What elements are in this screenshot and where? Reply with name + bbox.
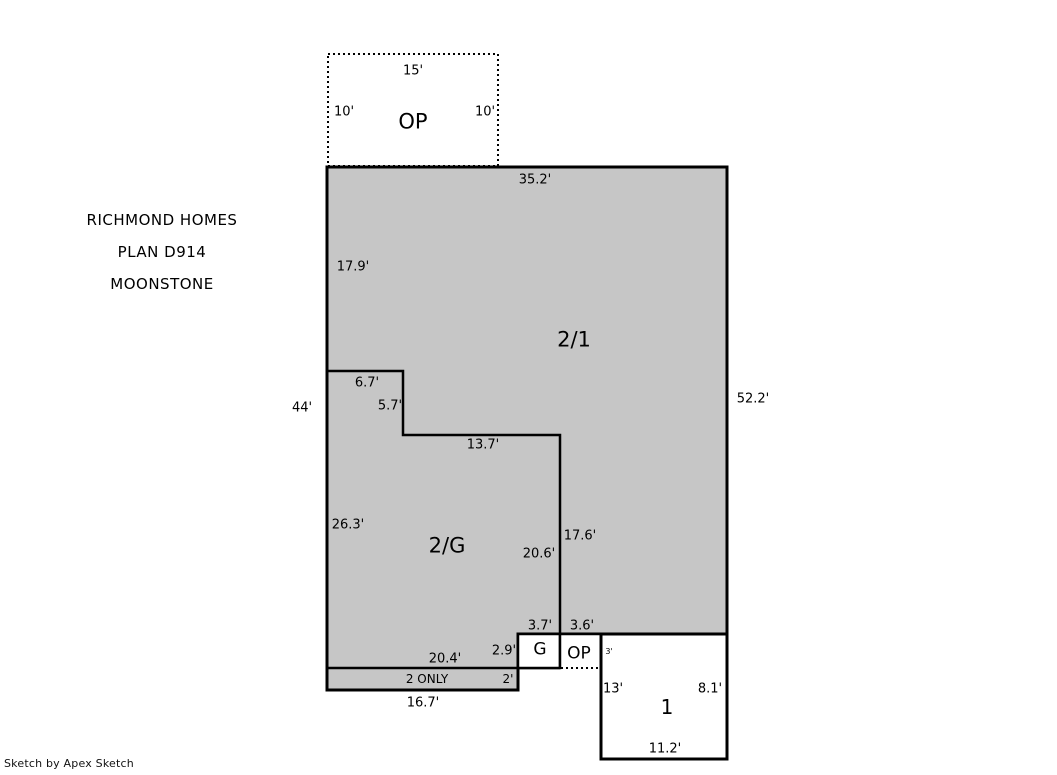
- area-label-g: G: [533, 642, 546, 659]
- dim-20-4ft-strip-top: 20.4': [429, 653, 462, 666]
- dim-3ft-first-top: 3': [605, 648, 612, 656]
- area-label-2-only: 2 ONLY: [406, 673, 448, 685]
- dim-20-6ft-inner: 20.6': [523, 548, 556, 561]
- area-label-2-1: 2/1: [557, 330, 591, 351]
- dim-17-9ft-left-upper: 17.9': [337, 261, 370, 274]
- dim-13ft-first-left: 13': [603, 683, 623, 696]
- dim-15ft-porch-top: 15': [403, 65, 423, 78]
- dim-3-7ft-garage-top: 3.7': [528, 620, 552, 633]
- dim-26-3ft-left-lower: 26.3': [332, 519, 365, 532]
- floor-plan-sketch: 15'10'OP10'35.2'17.9'2/16.7'44'5.7'52.2'…: [0, 0, 1057, 775]
- area-label-1: 1: [661, 697, 674, 717]
- dim-10ft-porch-left: 10': [334, 106, 354, 119]
- title-line-builder: RICHMOND HOMES: [40, 206, 284, 238]
- dim-35-2ft-top: 35.2': [519, 174, 552, 187]
- main-building-outline: [327, 167, 727, 690]
- area-label-op-upper: OP: [398, 112, 427, 133]
- dim-52-2ft-right: 52.2': [737, 393, 770, 406]
- dim-2-9ft-garage-left: 2.9': [492, 645, 516, 658]
- apex-sketch-watermark: Sketch by Apex Sketch: [4, 757, 134, 770]
- dim-13-7ft-step: 13.7': [467, 439, 500, 452]
- dim-17-6ft-inner: 17.6': [564, 530, 597, 543]
- area-label-op-lower: OP: [567, 646, 591, 663]
- floor-plan-drawing: [0, 0, 1057, 775]
- dim-3-6ft-porch-top: 3.6': [570, 620, 594, 633]
- dim-44ft-left: 44': [292, 402, 312, 415]
- title-line-model: MOONSTONE: [40, 270, 284, 302]
- title-block: RICHMOND HOMES PLAN D914 MOONSTONE: [40, 206, 284, 302]
- area-label-2-g: 2/G: [429, 536, 466, 557]
- dim-16-7ft-strip-bottom: 16.7': [407, 697, 440, 710]
- dim-5-7ft-step: 5.7': [378, 400, 402, 413]
- dim-2ft-strip: 2': [503, 673, 514, 685]
- dim-11-2ft-first-bottom: 11.2': [649, 743, 682, 756]
- dim-10ft-porch-right: 10': [475, 106, 495, 119]
- dim-6-7ft-step: 6.7': [355, 377, 379, 390]
- title-line-plan: PLAN D914: [40, 238, 284, 270]
- dim-8-1ft-first-right: 8.1': [698, 683, 722, 696]
